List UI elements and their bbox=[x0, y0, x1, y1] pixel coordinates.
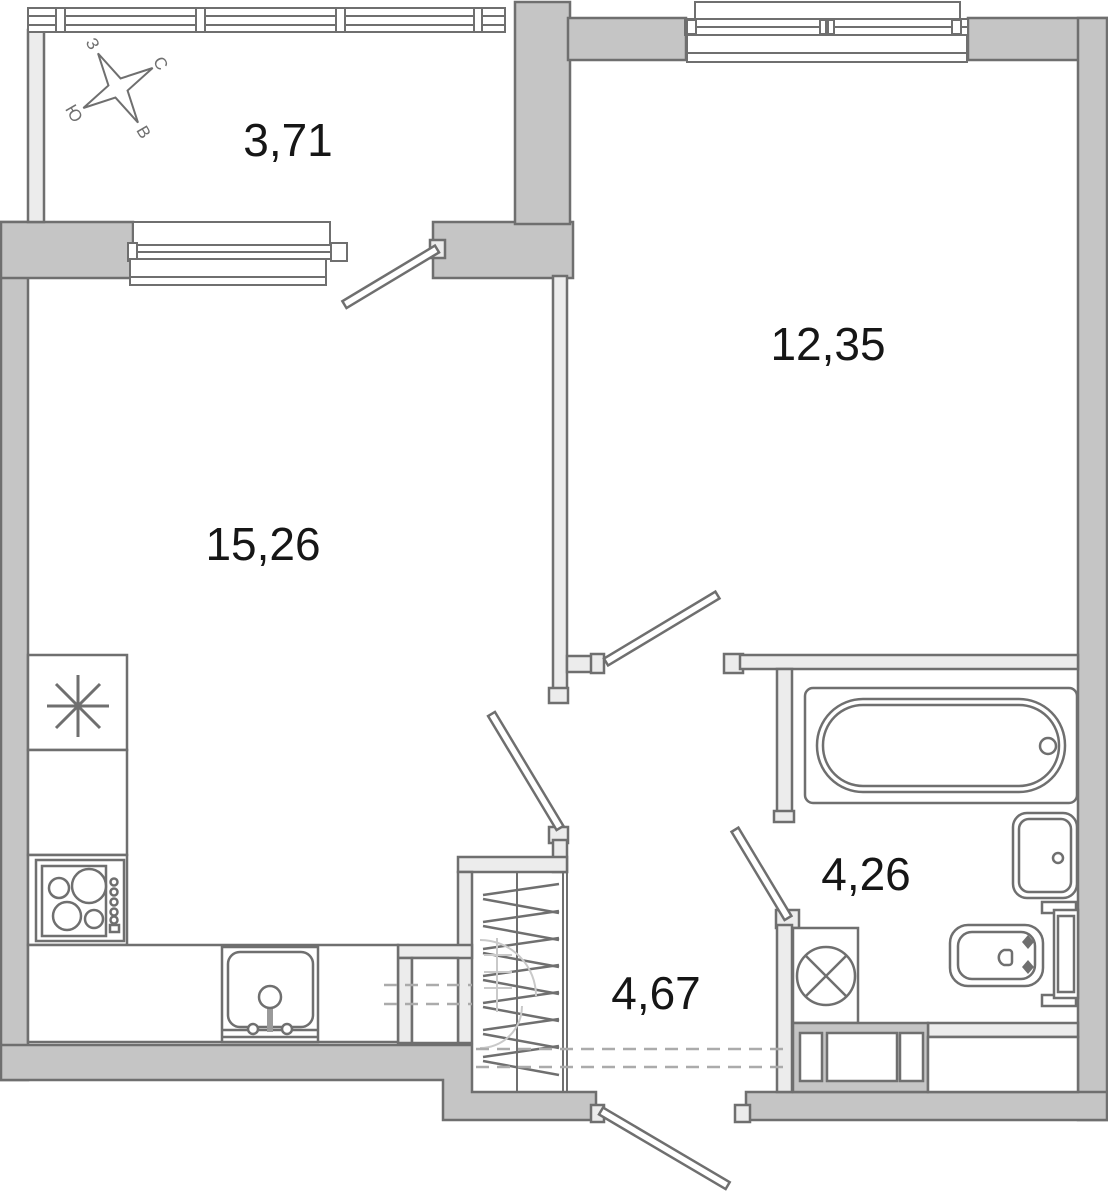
kitchen-counter-bottom bbox=[28, 945, 398, 1042]
door-living-room bbox=[488, 712, 563, 830]
wall-balcony-bedroom-divider bbox=[515, 2, 570, 224]
wardrobe-ghost-marks bbox=[480, 938, 536, 1048]
floor-plan-canvas: С В Ю З 3,71 12,35 15,26 4,26 4,67 bbox=[0, 0, 1108, 1191]
fridge-asterisk-icon bbox=[47, 675, 109, 737]
partition-hall-top bbox=[567, 656, 593, 672]
wall-niche-top bbox=[398, 945, 472, 958]
door-bathroom bbox=[732, 828, 792, 920]
towel-radiator-icon bbox=[1042, 902, 1078, 1006]
compass-west: З bbox=[82, 35, 104, 53]
compass-star-icon bbox=[63, 33, 172, 142]
toilet-icon bbox=[950, 925, 1043, 986]
kitchen-counter-box bbox=[28, 750, 127, 855]
washbasin-icon bbox=[1013, 813, 1077, 898]
compass-south: Ю bbox=[61, 101, 86, 125]
wall-top-left-segment bbox=[1, 222, 133, 278]
wall-niche-left bbox=[398, 958, 412, 1043]
bathroom-floor-panel bbox=[928, 1037, 1078, 1092]
jamb-bathroom-door-top bbox=[774, 811, 794, 822]
wall-left bbox=[1, 222, 28, 1080]
washing-machine-icon bbox=[793, 928, 858, 1023]
compass-north: С bbox=[149, 53, 172, 73]
bathroom-cabinet-block bbox=[793, 1023, 928, 1092]
wall-balcony-living-segment bbox=[433, 222, 573, 278]
door-balcony bbox=[342, 246, 439, 308]
partition-cap bbox=[549, 688, 568, 703]
window-balcony-front bbox=[28, 8, 505, 32]
door-bedroom bbox=[604, 592, 720, 666]
label-bathroom-area: 4,26 bbox=[821, 848, 911, 900]
jamb-entrance-right bbox=[735, 1105, 750, 1122]
compass-east: В bbox=[132, 123, 154, 142]
wall-bottom-left bbox=[1, 1045, 596, 1120]
band-bathroom-bottom bbox=[928, 1023, 1078, 1037]
partition-living-bedroom bbox=[553, 276, 567, 690]
wardrobe bbox=[472, 872, 567, 1092]
partition-bathroom-upper bbox=[777, 669, 792, 813]
bathtub-icon bbox=[805, 688, 1077, 803]
glazing-balcony-left bbox=[28, 30, 44, 222]
partition-bedroom-bathroom bbox=[740, 655, 1078, 669]
floor-plan: С В Ю З 3,71 12,35 15,26 4,26 4,67 bbox=[0, 0, 1108, 1191]
wall-wardrobe-top bbox=[458, 857, 567, 872]
label-living-kitchen-area: 15,26 bbox=[205, 518, 320, 570]
stove-icon bbox=[28, 855, 127, 945]
kitchen-sink-icon bbox=[222, 947, 318, 1042]
door-entrance bbox=[599, 1108, 730, 1190]
wall-right bbox=[1078, 18, 1107, 1120]
label-balcony-area: 3,71 bbox=[243, 114, 333, 166]
label-bedroom-area: 12,35 bbox=[770, 318, 885, 370]
wall-bedroom-top-left bbox=[568, 18, 686, 60]
window-bedroom bbox=[685, 2, 968, 62]
compass-rose: С В Ю З bbox=[38, 10, 197, 167]
duct-niche bbox=[412, 958, 458, 1043]
label-hallway-area: 4,67 bbox=[611, 967, 701, 1019]
wall-bottom-right bbox=[746, 1092, 1107, 1120]
jamb-bedroom-door-left bbox=[591, 654, 604, 673]
window-living-room bbox=[128, 222, 347, 285]
